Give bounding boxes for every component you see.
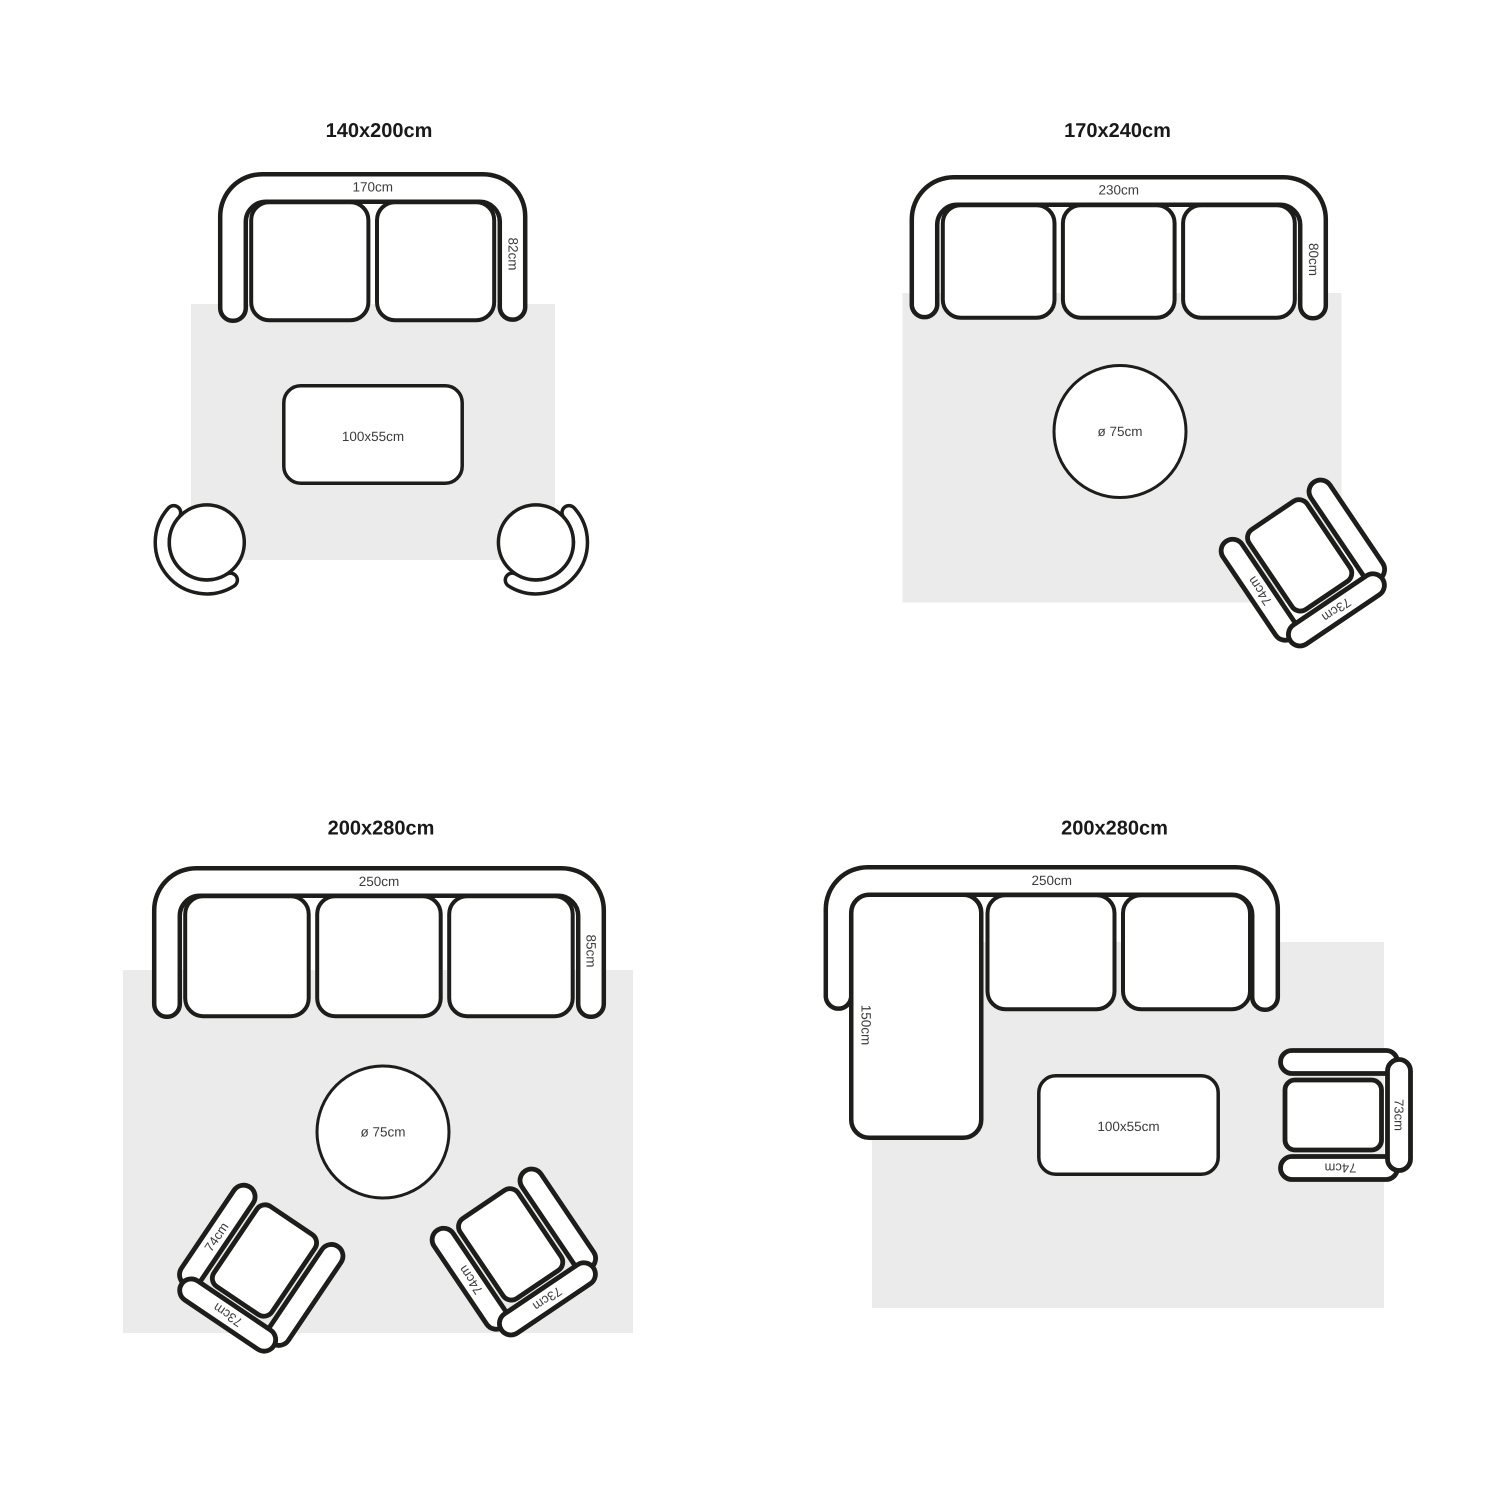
- svg-text:ø 75cm: ø 75cm: [360, 1125, 405, 1140]
- svg-text:ø 75cm: ø 75cm: [1097, 424, 1142, 439]
- svg-text:150cm: 150cm: [859, 1005, 874, 1046]
- svg-text:100x55cm: 100x55cm: [342, 429, 404, 444]
- svg-text:170x240cm: 170x240cm: [1064, 120, 1171, 142]
- svg-text:82cm: 82cm: [506, 237, 521, 270]
- svg-text:200x280cm: 200x280cm: [1061, 818, 1168, 840]
- svg-text:100x55cm: 100x55cm: [1097, 1119, 1159, 1134]
- svg-text:250cm: 250cm: [359, 874, 400, 889]
- svg-text:74cm: 74cm: [1325, 1161, 1357, 1176]
- svg-text:230cm: 230cm: [1099, 183, 1140, 198]
- svg-text:170cm: 170cm: [353, 180, 394, 195]
- svg-text:250cm: 250cm: [1032, 873, 1073, 888]
- svg-text:140x200cm: 140x200cm: [326, 120, 433, 142]
- svg-text:85cm: 85cm: [584, 934, 599, 967]
- svg-text:73cm: 73cm: [1392, 1099, 1407, 1131]
- svg-text:80cm: 80cm: [1306, 243, 1321, 276]
- svg-text:200x280cm: 200x280cm: [328, 818, 435, 840]
